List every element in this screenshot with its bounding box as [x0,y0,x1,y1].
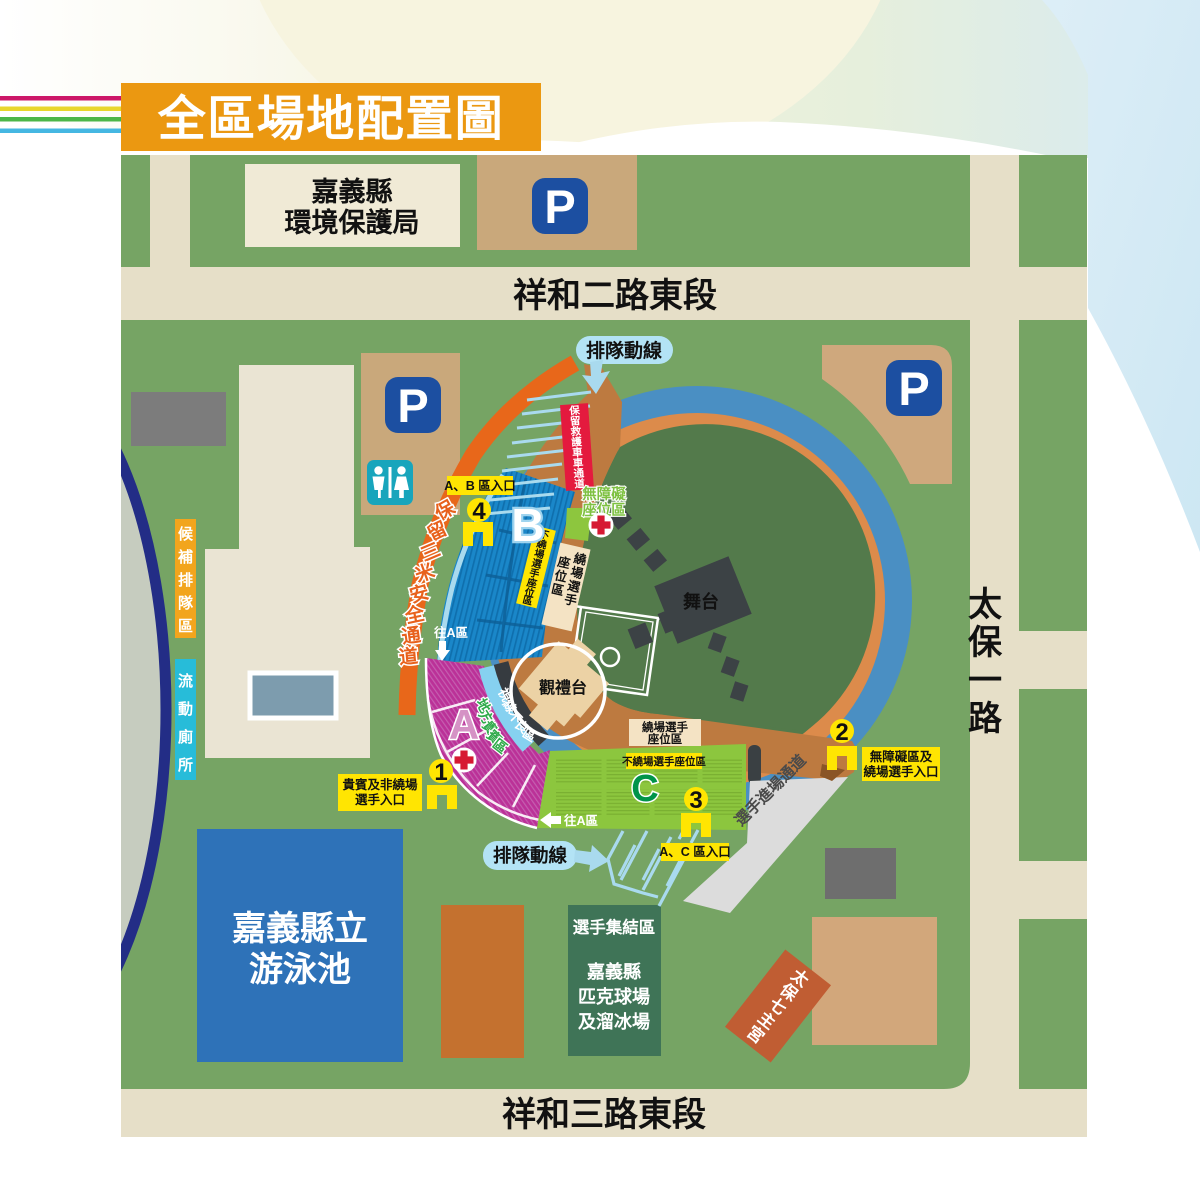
svg-text:往A區: 往A區 [434,625,469,640]
svg-text:不繞場選手座位區: 不繞場選手座位區 [622,755,706,768]
svg-text:道: 道 [398,644,419,669]
svg-text:保: 保 [968,624,1003,662]
svg-text:一: 一 [968,662,1002,700]
svg-text:匹克球場: 匹克球場 [578,986,650,1007]
svg-text:貴賓及非繞場: 貴賓及非繞場 [342,777,418,792]
svg-text:祥和二路東段: 祥和二路東段 [513,276,717,315]
svg-text:觀禮台: 觀禮台 [539,678,587,697]
svg-text:隊: 隊 [178,594,194,612]
svg-text:路: 路 [968,700,1003,738]
svg-text:廁: 廁 [178,728,193,746]
svg-text:繞場選手: 繞場選手 [642,720,688,734]
svg-text:祥和三路東段: 祥和三路東段 [502,1095,706,1134]
svg-text:選手入口: 選手入口 [355,792,405,807]
svg-text:4: 4 [472,498,486,525]
svg-text:排隊動線: 排隊動線 [586,339,662,362]
svg-text:所: 所 [178,757,193,774]
svg-text:補: 補 [177,548,193,566]
svg-text:排隊動線: 排隊動線 [493,845,568,866]
svg-text:全區場地配置圖: 全區場地配置圖 [157,92,505,146]
svg-text:嘉義縣立: 嘉義縣立 [232,910,368,948]
svg-text:太: 太 [968,586,1002,624]
svg-text:區: 區 [178,618,193,635]
svg-text:候: 候 [178,525,194,543]
svg-text:3: 3 [689,787,702,814]
svg-text:座位區: 座位區 [647,732,683,746]
svg-text:無障礙區及: 無障礙區及 [870,749,933,764]
svg-text:A、C 區入口: A、C 區入口 [659,845,731,859]
svg-text:環境保護局: 環境保護局 [285,207,420,238]
svg-text:舞台: 舞台 [683,591,719,612]
svg-text:B: B [511,499,544,551]
svg-text:P: P [898,362,929,415]
svg-text:1: 1 [434,759,447,786]
svg-text:嘉義縣: 嘉義縣 [586,961,641,982]
svg-text:A: A [449,701,479,748]
svg-text:往A區: 往A區 [564,813,599,828]
svg-text:A、B 區入口: A、B 區入口 [444,479,516,493]
svg-text:及溜冰場: 及溜冰場 [578,1011,650,1032]
svg-text:P: P [397,379,428,432]
svg-text:排: 排 [178,571,193,589]
svg-text:選手集結區: 選手集結區 [573,917,656,937]
svg-text:C: C [631,768,658,810]
svg-text:無障礙: 無障礙 [582,485,626,503]
svg-text:嘉義縣: 嘉義縣 [312,176,393,207]
svg-text:游泳池: 游泳池 [249,951,351,989]
svg-text:P: P [544,180,575,233]
svg-text:流: 流 [178,672,193,690]
svg-text:動: 動 [178,701,193,718]
svg-text:2: 2 [835,719,848,746]
svg-text:繞場選手入口: 繞場選手入口 [863,764,938,779]
